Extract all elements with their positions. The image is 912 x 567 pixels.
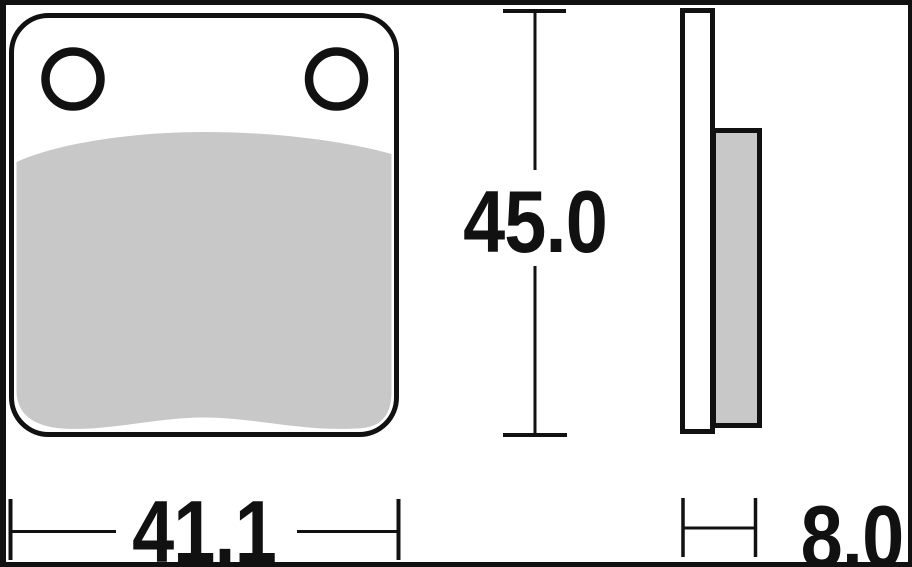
frame-left-edge xyxy=(0,0,6,567)
backplate-outline-side xyxy=(683,11,713,432)
brake-pad-technical-drawing: 45.0 41.1 8.0 xyxy=(0,0,912,567)
dimension-height-label: 45.0 xyxy=(463,178,607,266)
mounting-hole-right xyxy=(309,52,364,107)
frame-top-edge xyxy=(0,0,912,5)
friction-material-side xyxy=(714,131,760,426)
mounting-hole-left xyxy=(46,52,101,107)
frame-right-edge xyxy=(908,0,912,567)
friction-material-front xyxy=(17,132,392,429)
dimension-width-label: 41.1 xyxy=(132,488,276,567)
dimension-thickness-label: 8.0 xyxy=(801,493,904,567)
dimension-thickness xyxy=(683,498,756,557)
pad-side-view xyxy=(683,11,760,432)
pad-front-view xyxy=(12,16,397,435)
